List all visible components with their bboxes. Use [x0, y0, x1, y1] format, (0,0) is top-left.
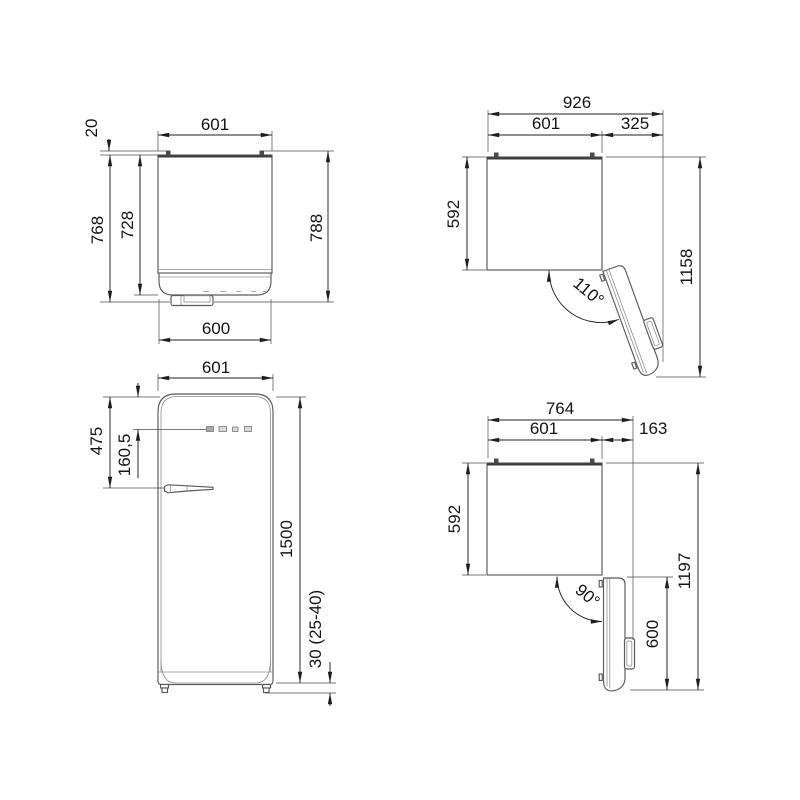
cabinet-top-outline [158, 155, 272, 273]
door-handle-front [171, 296, 213, 306]
hinge-left [494, 153, 499, 158]
dim-label-depth-total: 788 [307, 214, 326, 242]
dim-label-door-width: 600 [202, 319, 230, 338]
open-door-110 [599, 261, 671, 379]
cabinet-front-outline [158, 394, 273, 685]
hinge-left [166, 151, 171, 156]
dim-label-depth-body: 592 [445, 505, 464, 533]
hinge-left [494, 459, 499, 464]
dim-label-depth-body: 592 [444, 200, 463, 228]
dim-label-depth-body: 728 [118, 211, 137, 239]
dim-label-depth: 768 [88, 216, 107, 244]
dim-label-door-projection: 163 [639, 419, 667, 438]
dimension-drawing-svg: 601 20 768 728 788 600 926 601 325 592 1… [0, 0, 800, 800]
dim-label-height: 1500 [277, 520, 296, 558]
hinge-right [590, 153, 595, 158]
view-front: 601 475 160,5 1500 30 (25-40) [87, 358, 336, 706]
dim-label-width: 601 [202, 358, 230, 377]
hinge-right [260, 151, 265, 156]
hinge-right [590, 459, 595, 464]
dim-label-door-projection: 325 [621, 114, 649, 133]
dim-label-handle-from-top: 475 [87, 427, 106, 455]
dim-label-feet-height: 30 (25-40) [306, 590, 325, 668]
view-top-closed: 601 20 768 728 788 600 [82, 115, 334, 344]
dim-label-width: 601 [530, 419, 558, 438]
dim-label-overall-width: 926 [563, 93, 591, 112]
dim-label-controls-offset: 160,5 [115, 434, 134, 477]
dim-label-door-width: 600 [643, 620, 662, 648]
dim-label-overall-depth: 1158 [677, 249, 696, 286]
open-door-90 [599, 578, 634, 691]
view-top-open-90: 764 601 163 592 1197 600 90° [445, 399, 704, 691]
dim-label-hinge: 20 [82, 119, 101, 138]
view-top-open-110: 926 601 325 592 1158 110° [444, 93, 706, 379]
technical-drawing-page: 601 20 768 728 788 600 926 601 325 592 1… [0, 0, 800, 800]
cabinet-top-outline [487, 157, 602, 270]
cabinet-top-outline [487, 463, 602, 575]
dim-label-overall-depth: 1197 [675, 553, 694, 590]
dim-label-overall-width: 764 [546, 399, 574, 418]
dim-label-width: 601 [532, 114, 560, 133]
dim-label-width: 601 [201, 115, 229, 134]
feet [161, 685, 271, 693]
